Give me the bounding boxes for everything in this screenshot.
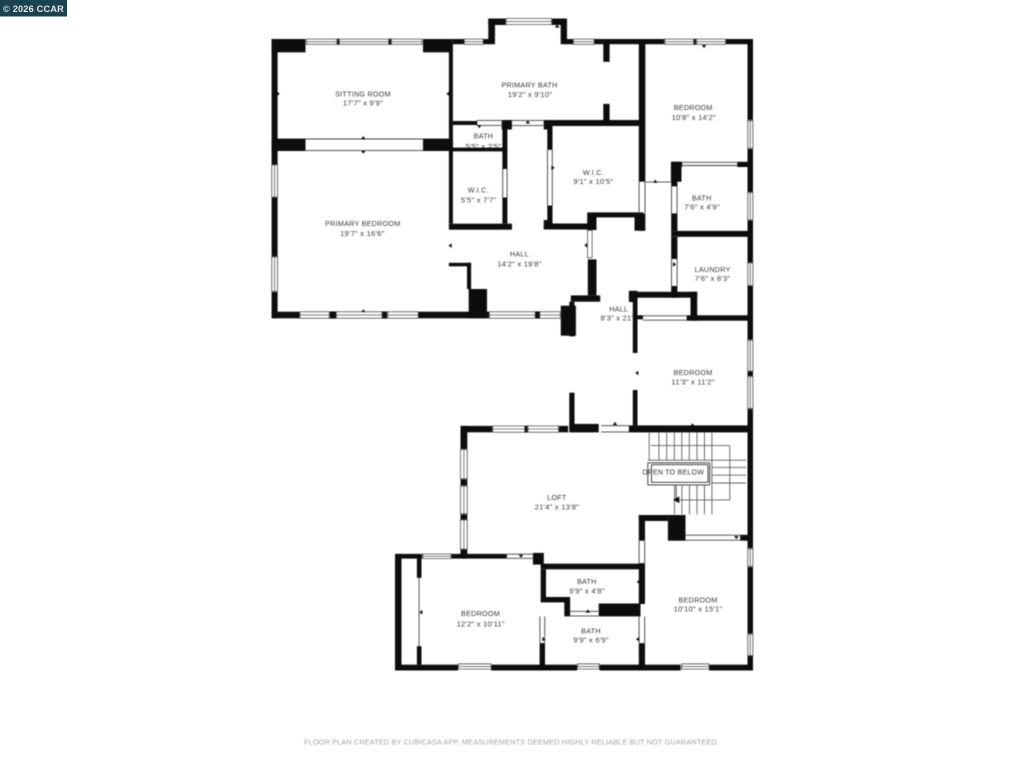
svg-text:9'9" x 6'9": 9'9" x 6'9" bbox=[573, 635, 609, 644]
svg-text:BATH: BATH bbox=[581, 626, 601, 635]
svg-text:PRIMARY BEDROOM: PRIMARY BEDROOM bbox=[325, 219, 400, 228]
svg-text:11'3" x 11'2": 11'3" x 11'2" bbox=[671, 378, 714, 387]
svg-text:BATH: BATH bbox=[577, 577, 597, 586]
svg-text:10'8" x 14'2": 10'8" x 14'2" bbox=[672, 113, 716, 122]
svg-text:7'6" x 4'9": 7'6" x 4'9" bbox=[684, 203, 720, 212]
svg-text:9'1" x 10'5": 9'1" x 10'5" bbox=[573, 177, 613, 186]
svg-text:BEDROOM: BEDROOM bbox=[679, 596, 718, 605]
svg-text:BATH: BATH bbox=[692, 194, 712, 203]
svg-text:HALL: HALL bbox=[609, 305, 628, 314]
svg-text:W.I.C.: W.I.C. bbox=[583, 168, 604, 177]
svg-text:LOFT: LOFT bbox=[547, 493, 567, 502]
svg-text:PRIMARY BATH: PRIMARY BATH bbox=[501, 80, 557, 89]
svg-text:BATH: BATH bbox=[474, 132, 494, 141]
svg-text:HALL: HALL bbox=[510, 250, 529, 259]
svg-text:5'5" x 7'7": 5'5" x 7'7" bbox=[461, 195, 497, 204]
svg-text:BEDROOM: BEDROOM bbox=[674, 368, 713, 377]
svg-text:BEDROOM: BEDROOM bbox=[461, 609, 500, 618]
svg-text:LAUNDRY: LAUNDRY bbox=[695, 265, 731, 274]
svg-text:17'7" x 9'9": 17'7" x 9'9" bbox=[343, 99, 383, 108]
svg-text:FLOOR PLAN CREATED BY CUBICASA: FLOOR PLAN CREATED BY CUBICASA APP. MEAS… bbox=[304, 737, 719, 746]
svg-text:7'6" x 8'3": 7'6" x 8'3" bbox=[695, 274, 731, 283]
svg-text:BEDROOM: BEDROOM bbox=[674, 103, 713, 112]
svg-text:© 2026 CCAR: © 2026 CCAR bbox=[3, 4, 64, 14]
svg-text:9'9" x 4'8": 9'9" x 4'8" bbox=[569, 586, 605, 595]
svg-text:12'2" x 10'11": 12'2" x 10'11" bbox=[457, 619, 505, 628]
svg-text:SITTING ROOM: SITTING ROOM bbox=[335, 89, 391, 98]
svg-text:21'4" x 13'8": 21'4" x 13'8" bbox=[535, 502, 579, 511]
svg-text:19'2" x 9'10": 19'2" x 9'10" bbox=[508, 90, 552, 99]
svg-text:10'10" x 15'1": 10'10" x 15'1" bbox=[674, 604, 723, 613]
svg-text:19'7" x 16'6": 19'7" x 16'6" bbox=[340, 229, 384, 238]
svg-text:14'2" x 19'8": 14'2" x 19'8" bbox=[497, 260, 541, 269]
svg-text:W.I.C.: W.I.C. bbox=[468, 186, 489, 195]
